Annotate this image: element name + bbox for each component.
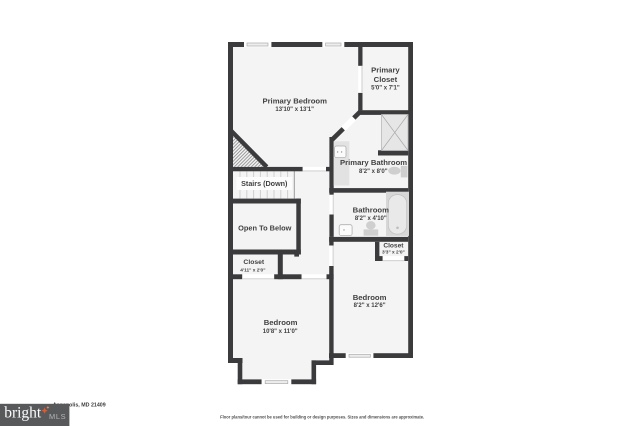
svg-text:Closet: Closet	[243, 259, 265, 266]
svg-text:8'2" x 8'0": 8'2" x 8'0"	[359, 169, 388, 175]
svg-text:MLS: MLS	[49, 412, 66, 421]
svg-text:Primary Bedroom: Primary Bedroom	[262, 97, 327, 106]
svg-text:Bathroom: Bathroom	[353, 205, 389, 214]
svg-text:8'2" x 12'6": 8'2" x 12'6"	[354, 303, 386, 309]
svg-text:Floor plans/tour cannot be use: Floor plans/tour cannot be used for buil…	[220, 414, 424, 419]
svg-text:Stairs (Down): Stairs (Down)	[241, 179, 288, 188]
svg-text:10'8" x 11'0": 10'8" x 11'0"	[263, 329, 298, 335]
svg-text:8'2" x 4'10": 8'2" x 4'10"	[355, 216, 387, 222]
svg-text:Primary Bathroom: Primary Bathroom	[340, 158, 407, 167]
svg-text:Bedroom: Bedroom	[264, 318, 298, 327]
svg-text:Closet: Closet	[374, 75, 398, 84]
svg-text:bright: bright	[4, 405, 42, 422]
svg-text:Open To Below: Open To Below	[238, 224, 291, 233]
svg-text:Closet: Closet	[383, 243, 404, 250]
svg-text:Bedroom: Bedroom	[353, 293, 387, 302]
svg-text:Primary: Primary	[371, 66, 400, 75]
svg-text:5'0" x 7'1": 5'0" x 7'1"	[371, 86, 400, 92]
svg-text:3'3" x 2'0": 3'3" x 2'0"	[382, 250, 405, 256]
svg-text:13'10" x 13'1": 13'10" x 13'1"	[275, 107, 314, 113]
svg-text:4'11" x 2'0": 4'11" x 2'0"	[240, 268, 265, 274]
